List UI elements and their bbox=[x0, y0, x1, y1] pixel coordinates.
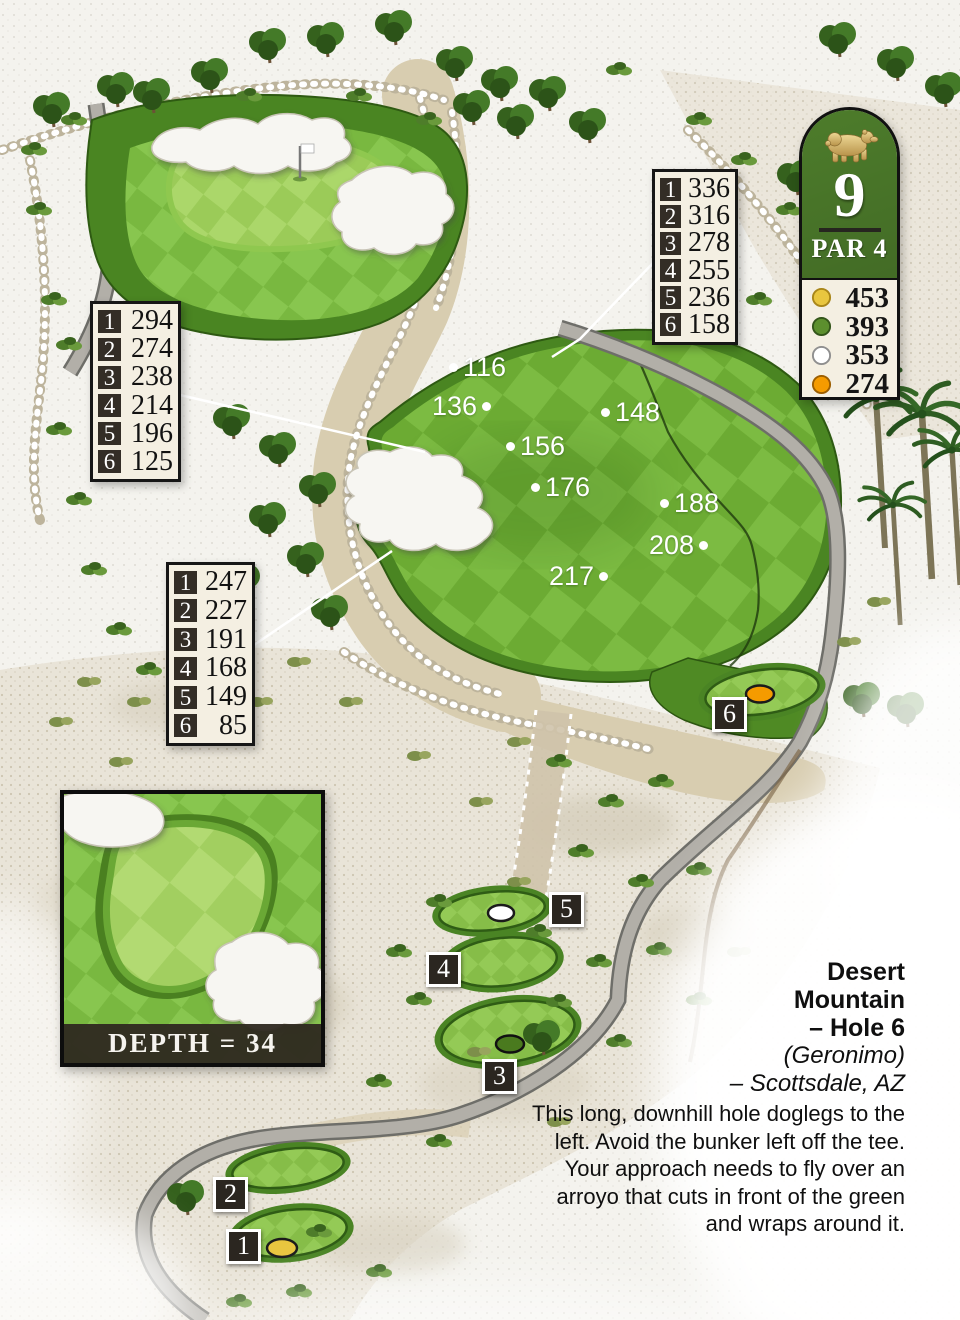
distance-marker: 176 bbox=[531, 473, 590, 501]
tee-label-text: 6 bbox=[723, 699, 736, 728]
tee-number: 6 bbox=[174, 714, 197, 737]
table-row: 4214 bbox=[98, 393, 173, 419]
tee-yardage-row: 393 bbox=[811, 314, 889, 340]
yardage-value: 158 bbox=[688, 312, 730, 338]
hole-number: 9 bbox=[834, 166, 866, 224]
tee-number: 6 bbox=[98, 450, 121, 473]
table-row: 4255 bbox=[660, 258, 730, 284]
tee-label-1: 1 bbox=[226, 1229, 261, 1264]
orange-tee-dot-icon bbox=[811, 374, 832, 395]
distance-marker: 188 bbox=[660, 489, 719, 517]
tee-yardage-row: 353 bbox=[811, 342, 889, 368]
par-label: PAR 4 bbox=[811, 234, 887, 264]
tee-label-text: 4 bbox=[437, 954, 450, 983]
description-title-line: Desert bbox=[520, 958, 905, 986]
yardage-table-upper-right: 1336 2316 3278 4255 5236 6158 bbox=[652, 169, 738, 345]
tee-label-text: 3 bbox=[493, 1061, 506, 1090]
tee-number: 5 bbox=[98, 422, 121, 445]
green-tee-dot-icon bbox=[811, 316, 832, 337]
tee-number: 1 bbox=[660, 178, 681, 201]
tee-yardage: 274 bbox=[837, 371, 889, 397]
tee-yardage: 453 bbox=[837, 285, 889, 311]
marker-yards: 116 bbox=[463, 353, 506, 381]
tee-marker-5 bbox=[488, 905, 514, 921]
table-row: 685 bbox=[174, 713, 247, 739]
tee-label-2: 2 bbox=[213, 1177, 248, 1212]
table-row: 3278 bbox=[660, 230, 730, 256]
tee-label-4: 4 bbox=[426, 952, 461, 987]
distance-marker: 136 bbox=[432, 392, 491, 420]
sign-divider bbox=[819, 228, 881, 232]
inset-bunker-top-left bbox=[64, 794, 164, 847]
hole-sign-header: 9 PAR 4 bbox=[802, 110, 897, 280]
tee-number: 5 bbox=[174, 686, 197, 709]
marker-yards: 217 bbox=[549, 562, 594, 590]
tee-marker-6 bbox=[746, 686, 774, 703]
tee-yardage: 393 bbox=[837, 314, 889, 340]
description-title-line: – Hole 6 bbox=[520, 1014, 905, 1042]
tee-number: 4 bbox=[174, 657, 197, 680]
tee-number: 1 bbox=[98, 310, 121, 333]
distance-marker: 217 bbox=[549, 562, 608, 590]
marker-dot-icon bbox=[531, 483, 540, 492]
green-detail-inset: DEPTH = 34 bbox=[60, 790, 325, 1067]
tee-number: 2 bbox=[98, 338, 121, 361]
tee-label-5: 5 bbox=[549, 892, 584, 927]
flag-icon bbox=[301, 144, 314, 153]
marker-dot-icon bbox=[506, 442, 515, 451]
tee-number: 4 bbox=[98, 394, 121, 417]
yardage-value: 236 bbox=[688, 285, 730, 311]
tee-label-text: 1 bbox=[237, 1231, 250, 1260]
hole-description: Desert Mountain – Hole 6 (Geronimo) – Sc… bbox=[520, 958, 905, 1238]
table-row: 5236 bbox=[660, 285, 730, 311]
table-row: 6158 bbox=[660, 312, 730, 338]
table-row: 3191 bbox=[174, 627, 247, 653]
hole-sign: 9 PAR 4 453 393 353 274 bbox=[799, 107, 900, 400]
tee-yardage-row: 274 bbox=[811, 371, 889, 397]
inset-green-illustration bbox=[64, 794, 321, 1063]
distance-marker: 116 bbox=[449, 353, 506, 381]
marker-dot-icon bbox=[482, 402, 491, 411]
table-row: 2227 bbox=[174, 598, 247, 624]
yardage-table-left: 1294 2274 3238 4214 5196 6125 bbox=[90, 301, 181, 482]
table-row: 2274 bbox=[98, 336, 173, 362]
tee-label-text: 5 bbox=[560, 894, 573, 923]
table-row: 5196 bbox=[98, 421, 173, 447]
distance-marker: 156 bbox=[506, 432, 565, 460]
marker-yards: 148 bbox=[615, 398, 660, 426]
description-title-line: Mountain bbox=[520, 986, 905, 1014]
yardage-value: 227 bbox=[204, 598, 247, 624]
marker-dot-icon bbox=[699, 541, 708, 550]
tee-number: 2 bbox=[660, 205, 681, 228]
marker-dot-icon bbox=[660, 499, 669, 508]
yardage-value: 191 bbox=[204, 627, 247, 653]
yardage-value: 278 bbox=[688, 230, 730, 256]
distance-marker: 208 bbox=[649, 531, 708, 559]
description-subtitle-line: (Geronimo) bbox=[520, 1042, 905, 1070]
marker-dot-icon bbox=[601, 408, 610, 417]
tee-label-text: 2 bbox=[224, 1179, 237, 1208]
tee-number: 1 bbox=[174, 571, 197, 594]
marker-yards: 208 bbox=[649, 531, 694, 559]
inset-bunker-bottom-right bbox=[206, 932, 321, 1030]
marker-yards: 188 bbox=[674, 489, 719, 517]
gold-tee-dot-icon bbox=[811, 287, 832, 308]
table-row: 4168 bbox=[174, 655, 247, 681]
yardage-value: 238 bbox=[128, 364, 173, 390]
table-row: 1336 bbox=[660, 176, 730, 202]
yardage-table-lower-left: 1247 2227 3191 4168 5149 685 bbox=[166, 562, 255, 746]
tee-number: 3 bbox=[98, 366, 121, 389]
yardage-value: 85 bbox=[204, 713, 247, 739]
inset-depth-caption: DEPTH = 34 bbox=[64, 1024, 321, 1063]
table-row: 3238 bbox=[98, 364, 173, 390]
tee-number: 2 bbox=[174, 599, 197, 622]
yardage-value: 294 bbox=[128, 308, 173, 334]
tee-number: 4 bbox=[660, 259, 681, 282]
yardage-value: 196 bbox=[128, 421, 173, 447]
description-body: This long, downhill hole doglegs to the … bbox=[520, 1100, 905, 1238]
tee-marker-1 bbox=[267, 1239, 297, 1257]
table-row: 1294 bbox=[98, 308, 173, 334]
marker-yards: 176 bbox=[545, 473, 590, 501]
marker-yards: 156 bbox=[520, 432, 565, 460]
tee-number: 6 bbox=[660, 313, 681, 336]
yardage-value: 168 bbox=[204, 655, 247, 681]
table-row: 6125 bbox=[98, 449, 173, 475]
tee-number: 3 bbox=[660, 232, 681, 255]
white-tee-dot-icon bbox=[811, 345, 832, 366]
tee-number: 3 bbox=[174, 628, 197, 651]
tee-yardage: 353 bbox=[837, 342, 889, 368]
tee-number: 5 bbox=[660, 286, 681, 309]
yardage-value: 149 bbox=[204, 684, 247, 710]
yardage-value: 214 bbox=[128, 393, 173, 419]
marker-yards: 136 bbox=[432, 392, 477, 420]
yardage-value: 125 bbox=[128, 449, 173, 475]
table-row: 1247 bbox=[174, 569, 247, 595]
tee-label-6: 6 bbox=[712, 697, 747, 732]
table-row: 2316 bbox=[660, 203, 730, 229]
marker-dot-icon bbox=[449, 363, 458, 372]
yardage-value: 247 bbox=[204, 569, 247, 595]
table-row: 5149 bbox=[174, 684, 247, 710]
marker-dot-icon bbox=[599, 572, 608, 581]
distance-marker: 148 bbox=[601, 398, 660, 426]
sign-tee-yardages: 453 393 353 274 bbox=[802, 280, 897, 400]
hole-map-page: 9 PAR 4 453 393 353 274 1336 2316 3278 4… bbox=[0, 0, 960, 1320]
yardage-value: 255 bbox=[688, 258, 730, 284]
yardage-value: 274 bbox=[128, 336, 173, 362]
tee-yardage-row: 453 bbox=[811, 285, 889, 311]
yardage-value: 316 bbox=[688, 203, 730, 229]
tee-label-3: 3 bbox=[482, 1059, 517, 1094]
yardage-value: 336 bbox=[688, 176, 730, 202]
description-subtitle-line: – Scottsdale, AZ bbox=[520, 1070, 905, 1098]
